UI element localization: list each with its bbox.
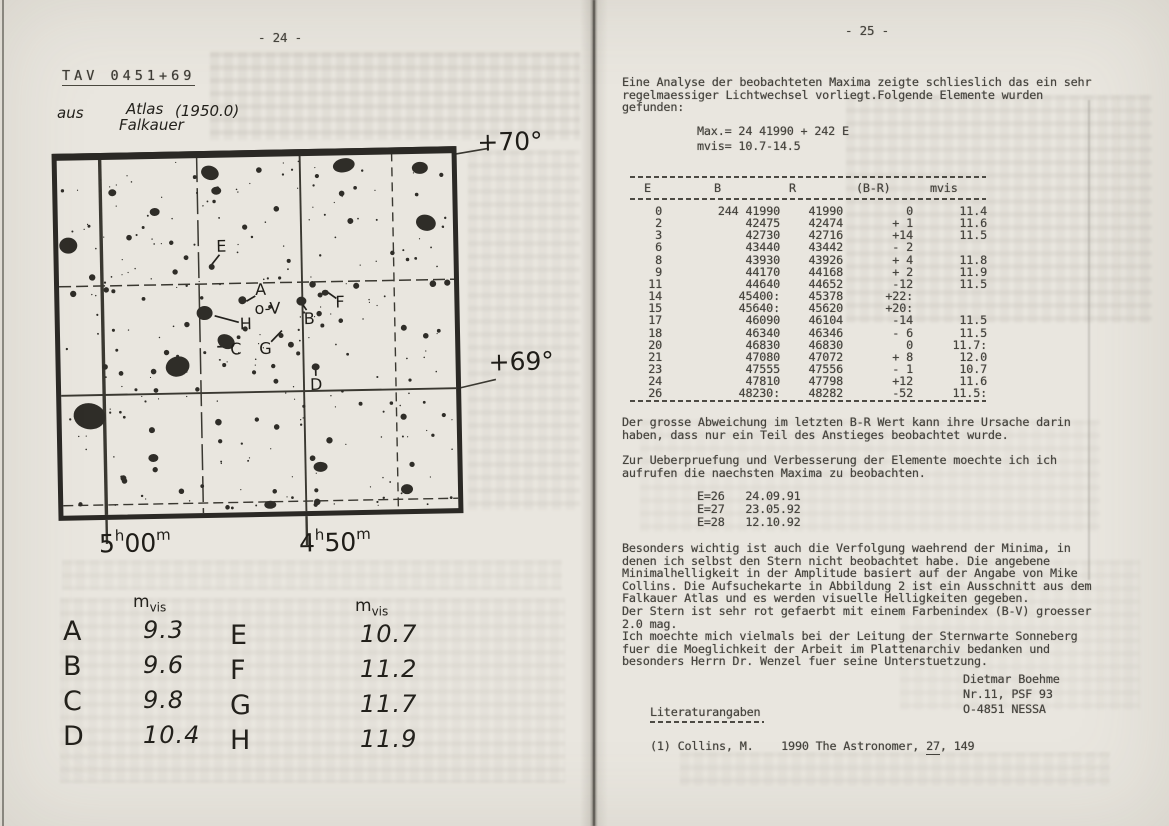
para-verification: Zur Ueberpruefung und Verbesserung der E… (622, 454, 1057, 480)
finder-chart: EAo-VBFHCGD +70° +69° 5h00m 4h50m (52, 146, 464, 521)
jd-table-row: 84393043926+ 411.8 (630, 254, 987, 266)
column-header-e: E (644, 182, 651, 195)
signature-block: Dietmar Boehme Nr.11, PSF 93 O-4851 NESS… (963, 672, 1060, 717)
mag-table-left: mvis A9.3 B9.6 C9.8 D10.4 (55, 592, 200, 758)
jd-table-cell: + 4 (843, 254, 913, 266)
star-label-H: H (240, 316, 252, 332)
jd-table-cell: 43440 (662, 241, 780, 253)
column-header-r: R (789, 182, 796, 195)
article-title: TAV 0451+69 (62, 70, 195, 86)
jd-table-cell: 48230: (662, 387, 780, 399)
jd-table-cell: 11.5 (913, 327, 987, 339)
jd-table-cell: 48282 (780, 387, 843, 399)
jd-table-cell: 11.5: (913, 387, 987, 399)
bleedthrough-text (680, 752, 1110, 786)
jd-table-cell: 46104 (780, 314, 843, 326)
star-label-D: D (310, 377, 323, 393)
jd-table-cell (913, 241, 987, 253)
jd-table-cell: 11.5 (913, 314, 987, 326)
ra-left-h: h (115, 527, 125, 545)
star-label-F: F (335, 294, 345, 310)
mag-row: F11.2 (225, 657, 417, 692)
page-number-left: - 24 - (258, 32, 302, 45)
star-label-A: A (255, 282, 266, 298)
jd-table-cell: 46346 (780, 327, 843, 339)
jd-table-cell: 11.5 (913, 278, 987, 290)
page-number-right: - 25 - (845, 25, 889, 38)
handwritten-source-note-aus: aus (57, 104, 84, 122)
jd-table-cell: -52 (843, 387, 913, 399)
jd-table-cell (913, 290, 987, 302)
jd-table-cell: 17 (630, 314, 662, 326)
jd-table-cell: 43930 (662, 254, 780, 266)
para-analysis: Eine Analyse der beobachteten Maxima zei… (622, 76, 1091, 114)
literature-underline (650, 721, 764, 723)
star-label-C: C (230, 341, 241, 357)
reference-pages: , 149 (940, 739, 975, 753)
jd-table-cell: 8 (630, 254, 662, 266)
jd-table-cell: - 6 (843, 327, 913, 339)
jd-table-body: 0244 4199041990011.424247542474+ 111.634… (630, 205, 987, 400)
scan-left-edge (2, 0, 4, 826)
mag-row: B9.6 (55, 653, 200, 688)
ra-right-h: h (315, 526, 325, 544)
ra-right-minutes: 50 (324, 527, 356, 557)
table-separator-top (630, 176, 986, 178)
star-label-G: G (259, 341, 272, 357)
dec-label-top: +70° (477, 128, 543, 154)
para-deviation: Der grosse Abweichung im letzten B-R Wer… (622, 416, 1071, 442)
ra-right-m: m (356, 525, 371, 543)
jd-table-row: 2648230:48282-5211.5: (630, 387, 987, 399)
jd-table-cell: 46340 (662, 327, 780, 339)
mag-row: A9.3 (55, 618, 200, 653)
mag-row: G11.7 (225, 692, 417, 727)
mag-row: C9.8 (55, 688, 200, 723)
column-header-b: B (714, 182, 721, 195)
chart-border-top (53, 146, 456, 161)
ra-left-minutes: 00 (124, 528, 156, 558)
jd-table-cell: 11.8 (913, 254, 987, 266)
elements-block: Max.= 24 41990 + 242 E mvis= 10.7-14.5 (697, 124, 849, 154)
star-label-B: B (304, 311, 315, 327)
mag-row: E10.7 (225, 622, 417, 657)
page-fold-line (593, 0, 595, 826)
maxima-predictions: E=26 24.09.91 E=27 23.05.92 E=28 12.10.9… (697, 490, 801, 529)
jd-table-cell: 46090 (662, 314, 780, 326)
para-minima: Besonders wichtig ist auch die Verfolgun… (622, 542, 1091, 668)
scanned-journal-spread: - 24 - TAV 0451+69 aus Atlas Falkauer (1… (0, 0, 1169, 826)
bleedthrough-rule (1088, 100, 1090, 580)
ra-label-right: 4h50m (299, 529, 371, 556)
column-header-br: (B-R) (856, 182, 891, 195)
jd-table-cell: - 2 (843, 241, 913, 253)
ra-left-hours: 5 (99, 529, 115, 558)
literature-heading: Literaturangaben (650, 706, 760, 719)
table-separator-bottom (630, 400, 986, 402)
reference-text: (1) Collins, M. 1990 The Astronomer, (650, 739, 926, 753)
ra-label-left: 5h00m (99, 530, 171, 557)
jd-table-cell: 43442 (780, 241, 843, 253)
reference-line: (1) Collins, M. 1990 The Astronomer, 27,… (650, 740, 974, 753)
star-label-E: E (216, 239, 226, 255)
ra-right-hours: 4 (299, 528, 315, 557)
dec-label-bottom: +69° (488, 348, 554, 374)
star-label-oV: o-V (254, 301, 280, 317)
table-separator-mid (630, 198, 986, 200)
jd-table-cell: 6 (630, 241, 662, 253)
handwritten-epoch-note: (1950.0) (175, 102, 239, 120)
mag-header: mvis (355, 596, 417, 622)
jd-table-cell: 26 (630, 387, 662, 399)
mag-row: H11.9 (225, 727, 417, 762)
jd-table-cell: 18 (630, 327, 662, 339)
jd-table-cell: 11.5 (913, 229, 987, 241)
jd-table-cell: -14 (843, 314, 913, 326)
ra-left-m: m (156, 526, 171, 544)
mag-row: D10.4 (55, 723, 200, 758)
reference-volume: 27 (926, 739, 940, 755)
mag-header: mvis (133, 592, 200, 618)
column-header-mvis: mvis (930, 182, 958, 195)
jd-table-cell: 43926 (780, 254, 843, 266)
jd-table-row: 174609046104-1411.5 (630, 314, 987, 326)
chart-border (54, 149, 461, 519)
mag-table-right: mvis E10.7 F11.2 G11.7 H11.9 (225, 596, 417, 762)
finder-chart-svg (52, 145, 540, 574)
jd-table-row: 184634046346- 611.5 (630, 327, 987, 339)
jd-table-row: 64344043442- 2 (630, 241, 987, 253)
